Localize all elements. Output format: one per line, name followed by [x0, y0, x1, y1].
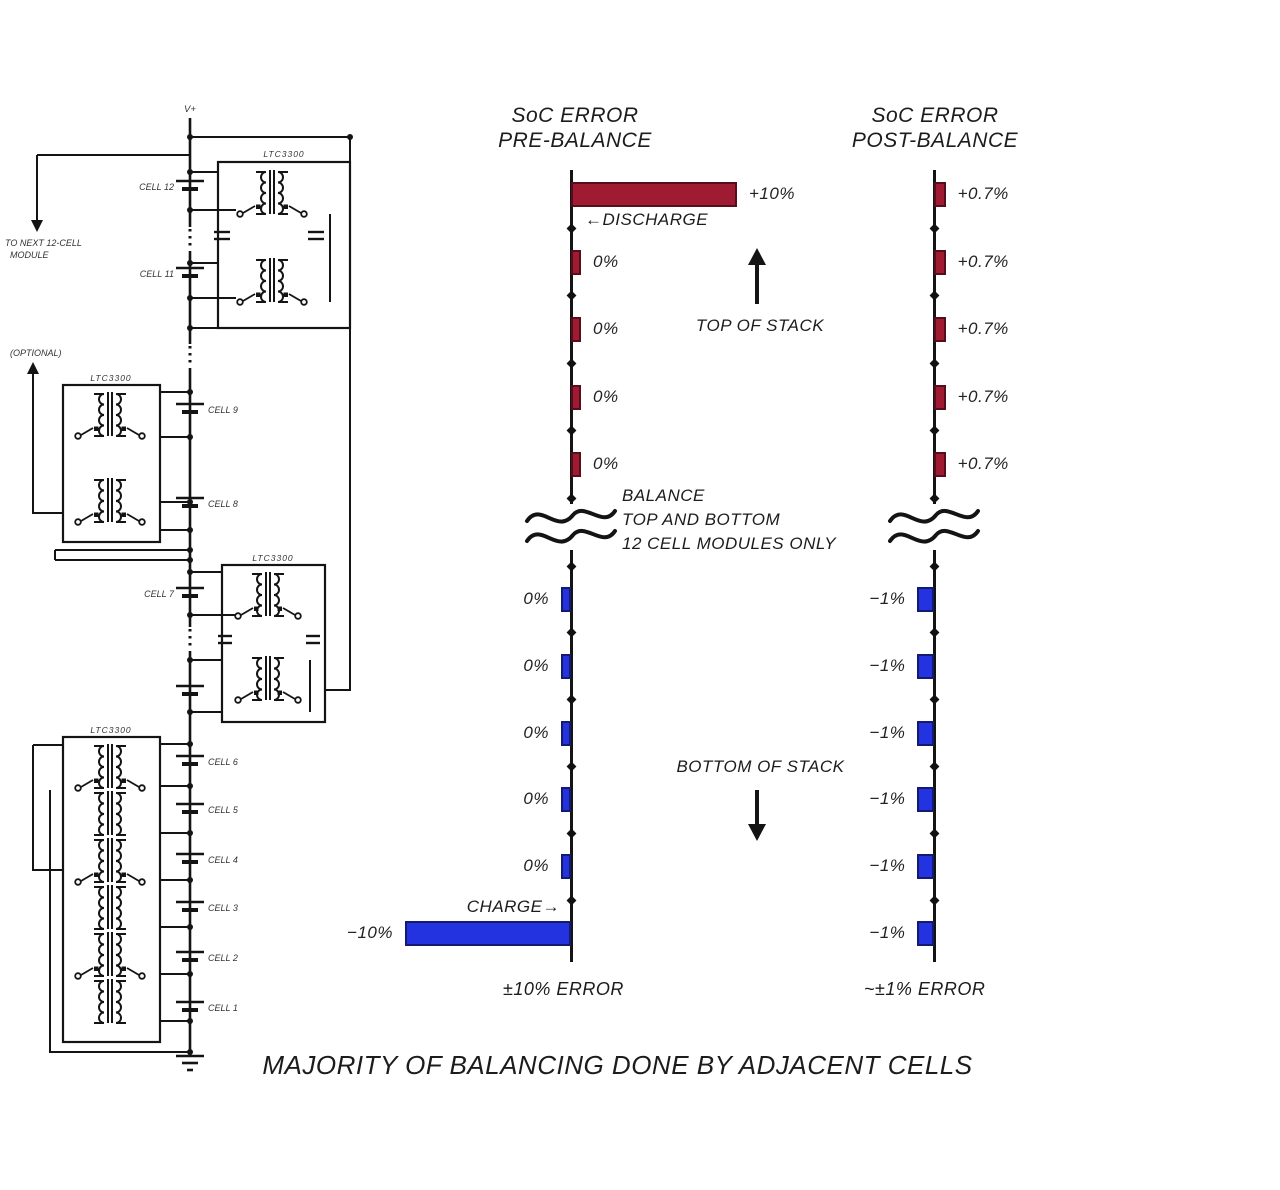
post-discharge-bar [934, 250, 946, 275]
post-balance-error-label: ~±1% ERROR [864, 979, 985, 1000]
post-axis-node [929, 628, 939, 638]
pre-charge-bar [561, 721, 571, 746]
pre-axis-node [566, 358, 576, 368]
post-bar-label: +0.7% [958, 184, 1009, 204]
balance-note-line2: TOP AND BOTTOM [622, 508, 836, 532]
pre-bar-label: 0% [593, 454, 619, 474]
post-balance-title: SoC ERROR POST-BALANCE [820, 103, 1050, 153]
post-balance-title-line1: SoC ERROR [820, 103, 1050, 128]
pre-axis-node [566, 223, 576, 233]
top-of-stack-label: TOP OF STACK [660, 316, 860, 336]
pre-axis-node [566, 561, 576, 571]
post-bar-label: −1% [775, 656, 905, 676]
post-charge-bar [917, 787, 934, 812]
discharge-label: ←DISCHARGE [585, 210, 708, 230]
pre-bar-label: 0% [593, 252, 619, 272]
bottom-of-stack-arrowhead [748, 824, 766, 841]
post-axis-node [929, 426, 939, 436]
pre-axis-break [523, 499, 619, 555]
pre-discharge-bar [571, 182, 737, 207]
pre-bar-label: 0% [419, 656, 549, 676]
post-axis-node [929, 223, 939, 233]
post-axis-node [929, 761, 939, 771]
post-bar-label: −1% [775, 923, 905, 943]
balance-note-line3: 12 CELL MODULES ONLY [622, 532, 836, 556]
post-axis-node [929, 695, 939, 705]
post-bar-label: +0.7% [958, 387, 1009, 407]
post-discharge-bar [934, 182, 946, 207]
post-axis-node [929, 828, 939, 838]
pre-charge-bar [561, 787, 571, 812]
balance-note: BALANCE TOP AND BOTTOM 12 CELL MODULES O… [622, 484, 836, 556]
pre-discharge-bar [571, 317, 581, 342]
pre-axis-node [566, 895, 576, 905]
balance-note-line1: BALANCE [622, 484, 836, 508]
post-charge-bar [917, 654, 934, 679]
top-of-stack-arrowhead [748, 248, 766, 265]
pre-charge-bar [561, 654, 571, 679]
post-axis-node [929, 291, 939, 301]
charts-layer: +10%0%0%0%0%0%0%0%0%0%−10%+0.7%+0.7%+0.7… [0, 0, 1280, 1190]
pre-axis-node [566, 761, 576, 771]
post-charge-bar [917, 854, 934, 879]
post-discharge-bar [934, 452, 946, 477]
top-of-stack-arrow-shaft [755, 264, 759, 304]
post-bar-label: +0.7% [958, 252, 1009, 272]
pre-axis-node [566, 291, 576, 301]
pre-bar-label: +10% [749, 184, 795, 204]
post-discharge-bar [934, 317, 946, 342]
post-axis-node [929, 561, 939, 571]
pre-bar-label: 0% [419, 789, 549, 809]
pre-charge-bar [561, 854, 571, 879]
pre-bar-label: 0% [419, 856, 549, 876]
pre-balance-title-line2: PRE-BALANCE [460, 128, 690, 153]
pre-bar-label: 0% [593, 319, 619, 339]
pre-bar-label: 0% [419, 723, 549, 743]
post-bar-label: −1% [775, 856, 905, 876]
post-charge-bar [917, 721, 934, 746]
pre-axis-node [566, 628, 576, 638]
pre-axis-node [566, 426, 576, 436]
pre-discharge-bar [571, 452, 581, 477]
pre-balance-title-line1: SoC ERROR [460, 103, 690, 128]
pre-balance-error-label: ±10% ERROR [503, 979, 624, 1000]
post-bar-label: −1% [775, 789, 905, 809]
bottom-of-stack-arrow-shaft [755, 790, 759, 826]
post-axis-node [929, 358, 939, 368]
pre-axis-node [566, 828, 576, 838]
pre-axis-node [566, 695, 576, 705]
pre-charge-bar [561, 587, 571, 612]
pre-bar-label: 0% [419, 589, 549, 609]
post-bar-label: −1% [775, 589, 905, 609]
bottom-of-stack-label: BOTTOM OF STACK [658, 757, 863, 777]
post-bar-label: +0.7% [958, 319, 1009, 339]
pre-discharge-bar [571, 385, 581, 410]
post-balance-title-line2: POST-BALANCE [820, 128, 1050, 153]
pre-charge-bar [405, 921, 571, 946]
post-axis-node [929, 895, 939, 905]
post-charge-bar [917, 587, 934, 612]
post-charge-bar [917, 921, 934, 946]
figure-caption: MAJORITY OF BALANCING DONE BY ADJACENT C… [0, 1050, 1235, 1081]
post-discharge-bar [934, 385, 946, 410]
pre-bar-label: −10% [263, 923, 393, 943]
post-bar-label: +0.7% [958, 454, 1009, 474]
post-axis-break [886, 499, 982, 555]
charge-label: CHARGE→ [380, 897, 560, 917]
post-bar-label: −1% [775, 723, 905, 743]
pre-bar-label: 0% [593, 387, 619, 407]
balancing-figure: LTC3300 LTC3300 LTC3300 LTC3300 [0, 0, 1280, 1190]
pre-balance-title: SoC ERROR PRE-BALANCE [460, 103, 690, 153]
pre-discharge-bar [571, 250, 581, 275]
